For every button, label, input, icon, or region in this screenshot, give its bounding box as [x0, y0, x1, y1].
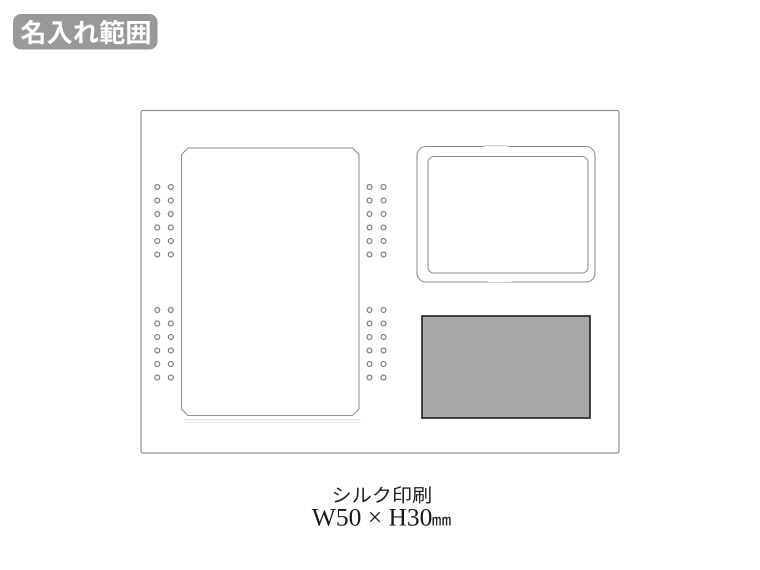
svg-text:W50 × H30: W50 × H30: [312, 503, 433, 532]
